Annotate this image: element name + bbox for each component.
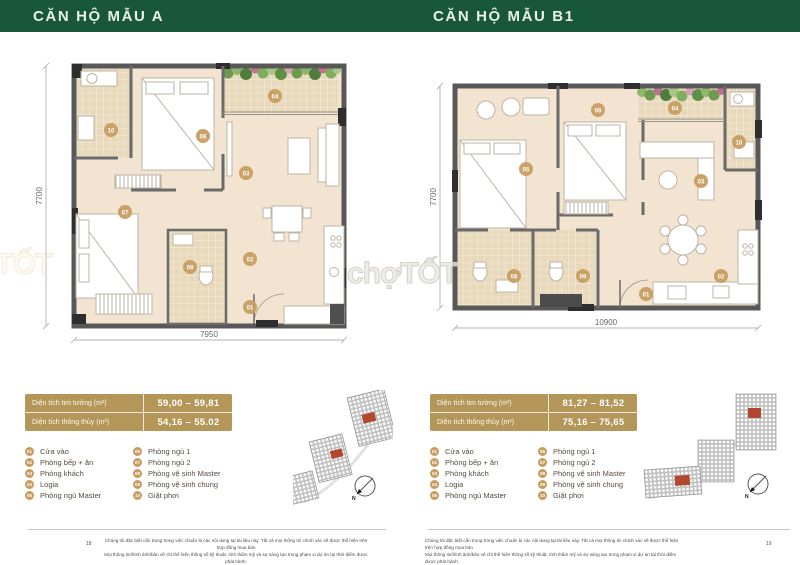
legend-item: 03 Phòng khách (430, 468, 538, 479)
keyplan-building-3 (644, 466, 702, 498)
legend-item: 08 Phòng vệ sinh Master (133, 468, 221, 479)
compass-label: N (745, 494, 749, 500)
floor-plan-a: 10 06 04 03 07 09 02 01 7700 7950 (26, 58, 348, 354)
room-marker: 10 (732, 135, 746, 149)
svg-text:04: 04 (272, 94, 279, 100)
legend-item: 06 Phòng ngủ 1 (538, 446, 626, 457)
legend-number-badge: 08 (538, 469, 547, 478)
legend-item: 03 Phòng khách (25, 468, 133, 479)
svg-text:03: 03 (243, 171, 250, 177)
svg-text:05: 05 (523, 167, 530, 173)
legend-number-badge: 01 (25, 447, 34, 456)
keyplan-building-3 (293, 471, 319, 505)
svg-text:10: 10 (108, 128, 115, 134)
room-marker: 04 (668, 101, 682, 115)
legend-item: 06 Phòng ngủ 1 (133, 446, 221, 457)
legend-column-2: 06 Phòng ngủ 1 07 Phòng ngủ 2 08 Phòng v… (133, 446, 221, 500)
area-row-value: 81,27 – 81,52 (549, 394, 637, 412)
legend-item: 04 Logia (430, 479, 538, 490)
footer-disclaimer: Chúng tôi đặc biệt cẩn trọng trong việc … (425, 537, 687, 565)
legend-label: Phòng vệ sinh Master (148, 469, 221, 478)
room-marker: 05 (519, 162, 533, 176)
svg-text:06: 06 (200, 134, 207, 140)
legend-item: 02 Phòng bếp + ăn (25, 457, 133, 468)
svg-text:01: 01 (247, 305, 254, 311)
area-row-value: 59,00 – 59,81 (144, 394, 232, 412)
room-marker: 03 (239, 166, 253, 180)
area-row-label: Diện tích tim tường (m²) (25, 394, 143, 412)
footer-divider (428, 529, 790, 530)
legend-number-badge: 03 (430, 469, 439, 478)
footer-divider (28, 529, 386, 530)
svg-text:03: 03 (698, 179, 705, 185)
plan-a-dim-width: 7950 (200, 330, 218, 339)
legend-label: Logia (40, 480, 58, 489)
floor-plan-a-container: 10 06 04 03 07 09 02 01 7700 7950 (26, 58, 348, 354)
keyplan-b1-svg: N (640, 388, 792, 516)
disclaimer-line-1: Chúng tôi đặc biệt cẩn trọng trong việc … (105, 538, 368, 550)
keyplan-building-2 (309, 434, 352, 483)
legend-label: Giặt phơi (553, 491, 584, 500)
legend-label: Phòng bếp + ăn (40, 458, 93, 467)
plan-a-fridge (330, 304, 344, 324)
legend-number-badge: 09 (538, 480, 547, 489)
legend-number-badge: 08 (133, 469, 142, 478)
legend-label: Phòng ngủ 2 (553, 458, 596, 467)
room-marker: 03 (694, 174, 708, 188)
svg-text:02: 02 (247, 257, 254, 263)
legend-item: 08 Phòng vệ sinh Master (538, 468, 626, 479)
legend-item: 07 Phòng ngủ 2 (538, 457, 626, 468)
legend-item: 05 Phòng ngủ Master (430, 490, 538, 501)
footer-disclaimer: Chúng tôi đặc biệt cẩn trọng trong việc … (102, 537, 370, 565)
room-marker: 02 (243, 252, 257, 266)
page-apartment-a: CĂN HỘ MẪU A (0, 0, 400, 565)
floor-plan-b1-container: 05 06 04 10 03 08 09 01 02 7700 10900 (428, 80, 772, 342)
compass-label: N (352, 496, 356, 502)
legend-label: Phòng khách (40, 469, 84, 478)
room-marker: 06 (196, 129, 210, 143)
page-title-a: CĂN HỘ MẪU A (33, 8, 164, 25)
legend-column-1: 01 Cửa vào 02 Phòng bếp + ăn 03 Phòng kh… (430, 446, 538, 500)
legend-label: Phòng khách (445, 469, 489, 478)
page-apartment-b1: CĂN HỘ MẪU B1 (400, 0, 800, 565)
svg-text:01: 01 (643, 292, 650, 298)
keyplan-building-2 (698, 440, 734, 482)
keyplan-building-1 (347, 390, 393, 447)
keyplan-a: N (293, 390, 393, 523)
legend-number-badge: 10 (538, 491, 547, 500)
legend-item: 10 Giặt phơi (133, 490, 221, 501)
room-marker: 09 (183, 260, 197, 274)
svg-text:10: 10 (736, 140, 743, 146)
legend-label: Phòng ngủ 1 (148, 447, 191, 456)
legend-item: 05 Phòng ngủ Master (25, 490, 133, 501)
legend-number-badge: 04 (430, 480, 439, 489)
header-bar-a: CĂN HỘ MẪU A (0, 0, 400, 32)
room-marker: 06 (591, 103, 605, 117)
legend-item: 09 Phòng vệ sinh chung (538, 479, 626, 490)
legend-number-badge: 02 (25, 458, 34, 467)
keyplan-a-svg: N (293, 390, 393, 518)
plan-b1-dim-width: 10900 (595, 318, 618, 327)
legend-label: Giặt phơi (148, 491, 179, 500)
room-marker: 10 (104, 123, 118, 137)
legend-number-badge: 07 (538, 458, 547, 467)
legend-a: 01 Cửa vào 02 Phòng bếp + ăn 03 Phòng kh… (25, 446, 260, 500)
keyplan-b1: N (640, 388, 792, 521)
legend-label: Logia (445, 480, 463, 489)
svg-text:04: 04 (672, 106, 679, 112)
legend-label: Cửa vào (40, 447, 69, 456)
legend-item: 01 Cửa vào (25, 446, 133, 457)
area-row-label: Diện tích thông thủy (m²) (25, 413, 143, 431)
legend-number-badge: 04 (25, 480, 34, 489)
legend-label: Phòng vệ sinh chung (148, 480, 218, 489)
legend-number-badge: 10 (133, 491, 142, 500)
legend-number-badge: 02 (430, 458, 439, 467)
page-number: 19 (766, 541, 772, 547)
room-marker: 04 (268, 89, 282, 103)
plan-b1-dim-height: 7700 (429, 188, 438, 206)
legend-number-badge: 06 (133, 447, 142, 456)
area-row-label: Diện tích tim tường (m²) (430, 394, 548, 412)
disclaimer-line-2: Mọi thông tin/hình ảnh/bản vẽ chỉ thể hi… (104, 552, 367, 564)
legend-item: 02 Phòng bếp + ăn (430, 457, 538, 468)
keyplan-building-1 (736, 394, 776, 450)
svg-text:09: 09 (580, 274, 587, 280)
area-row-label: Diện tích thông thủy (m²) (430, 413, 548, 431)
legend-item: 09 Phòng vệ sinh chung (133, 479, 221, 490)
room-marker: 01 (243, 300, 257, 314)
legend-label: Phòng ngủ 2 (148, 458, 191, 467)
legend-number-badge: 03 (25, 469, 34, 478)
area-row-value: 54,16 – 55.02 (144, 413, 232, 431)
legend-label: Phòng ngủ 1 (553, 447, 596, 456)
legend-number-badge: 05 (25, 491, 34, 500)
legend-label: Phòng ngủ Master (40, 491, 101, 500)
svg-text:02: 02 (718, 274, 725, 280)
legend-item: 10 Giặt phơi (538, 490, 626, 501)
plan-b1-vanity-wall (540, 294, 582, 307)
legend-number-badge: 07 (133, 458, 142, 467)
plan-a-dim-height: 7700 (35, 187, 44, 205)
legend-item: 07 Phòng ngủ 2 (133, 457, 221, 468)
plan-b1-bath-master-floor (455, 230, 533, 308)
room-marker: 01 (639, 287, 653, 301)
legend-number-badge: 06 (538, 447, 547, 456)
legend-column-2: 06 Phòng ngủ 1 07 Phòng ngủ 2 08 Phòng v… (538, 446, 626, 500)
legend-column-1: 01 Cửa vào 02 Phòng bếp + ăn 03 Phòng kh… (25, 446, 133, 500)
page-title-b1: CĂN HỘ MẪU B1 (433, 8, 575, 25)
legend-label: Phòng ngủ Master (445, 491, 506, 500)
legend-label: Phòng bếp + ăn (445, 458, 498, 467)
legend-label: Phòng vệ sinh Master (553, 469, 626, 478)
legend-item: 04 Logia (25, 479, 133, 490)
svg-text:09: 09 (187, 265, 194, 271)
room-marker: 02 (714, 269, 728, 283)
svg-text:08: 08 (511, 274, 518, 280)
area-row-value: 75,16 – 75,65 (549, 413, 637, 431)
header-bar-b1: CĂN HỘ MẪU B1 (400, 0, 800, 32)
disclaimer-line-1: Chúng tôi đặc biệt cẩn trọng trong việc … (425, 538, 678, 550)
area-table-b1: Diện tích tim tường (m²) 81,27 – 81,52 D… (430, 394, 637, 431)
room-marker: 09 (576, 269, 590, 283)
area-table-a: Diện tích tim tường (m²) 59,00 – 59,81 D… (25, 394, 232, 431)
svg-text:07: 07 (122, 210, 129, 216)
room-marker: 08 (507, 269, 521, 283)
legend-item: 01 Cửa vào (430, 446, 538, 457)
compass: N (745, 474, 768, 500)
legend-number-badge: 01 (430, 447, 439, 456)
legend-label: Phòng vệ sinh chung (553, 480, 623, 489)
legend-b1: 01 Cửa vào 02 Phòng bếp + ăn 03 Phòng kh… (430, 446, 665, 500)
legend-number-badge: 09 (133, 480, 142, 489)
page-number: 18 (86, 541, 92, 547)
legend-number-badge: 05 (430, 491, 439, 500)
disclaimer-line-2: Mọi thông tin/hình ảnh/bản vẽ chỉ thể hi… (425, 552, 676, 564)
room-marker: 07 (118, 205, 132, 219)
compass: N (352, 476, 375, 502)
legend-label: Cửa vào (445, 447, 474, 456)
svg-text:06: 06 (595, 108, 602, 114)
floor-plan-b1: 05 06 04 10 03 08 09 01 02 7700 10900 (428, 80, 772, 342)
